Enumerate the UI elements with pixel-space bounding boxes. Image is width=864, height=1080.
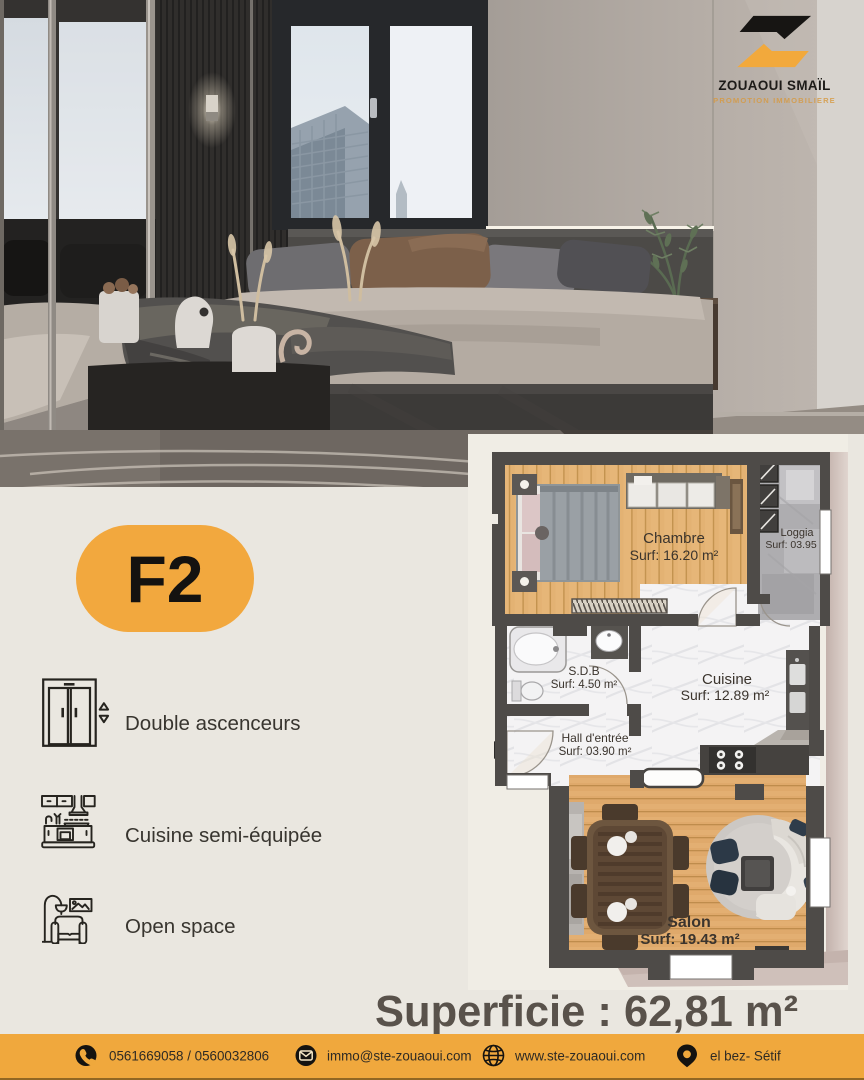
svg-text:www.ste-zouaoui.com: www.ste-zouaoui.com bbox=[514, 1049, 645, 1064]
svg-text:Surf: 12.89 m²: Surf: 12.89 m² bbox=[681, 687, 770, 703]
svg-text:S.D.B: S.D.B bbox=[568, 664, 599, 678]
svg-text:0561669058 / 0560032806: 0561669058 / 0560032806 bbox=[109, 1049, 269, 1064]
svg-text:Surf: 03.95: Surf: 03.95 bbox=[765, 539, 817, 551]
svg-text:Surf: 03.90 m²: Surf: 03.90 m² bbox=[559, 746, 632, 758]
svg-text:ZOUAOUI SMAÏL: ZOUAOUI SMAÏL bbox=[718, 78, 830, 93]
svg-text:immo@ste-zouaoui.com: immo@ste-zouaoui.com bbox=[327, 1049, 472, 1064]
svg-text:Surf: 4.50 m²: Surf: 4.50 m² bbox=[551, 679, 618, 691]
svg-text:el bez- Sétif: el bez- Sétif bbox=[710, 1049, 781, 1064]
svg-text:Cuisine: Cuisine bbox=[702, 671, 752, 688]
svg-text:Chambre: Chambre bbox=[643, 530, 705, 547]
svg-text:PROMOTION IMMOBILIERE: PROMOTION IMMOBILIERE bbox=[713, 96, 836, 105]
svg-text:Salon: Salon bbox=[667, 914, 711, 931]
svg-text:Surf: 19.43 m²: Surf: 19.43 m² bbox=[640, 931, 739, 948]
svg-text:Surf: 16.20 m²: Surf: 16.20 m² bbox=[630, 547, 719, 563]
svg-text:Hall d'entrée: Hall d'entrée bbox=[562, 731, 629, 745]
svg-text:Loggia: Loggia bbox=[780, 527, 814, 539]
